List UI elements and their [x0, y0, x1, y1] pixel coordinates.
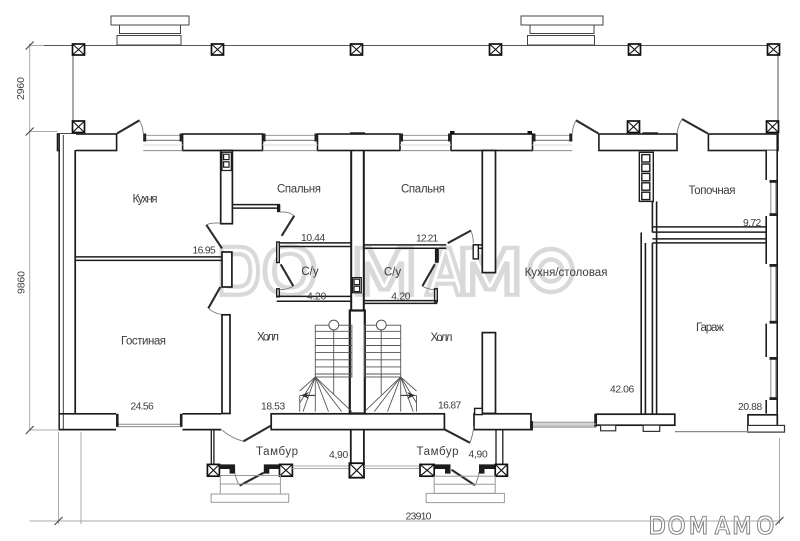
svg-text:4.20: 4.20 — [307, 292, 326, 303]
svg-text:18.53: 18.53 — [261, 401, 285, 412]
svg-text:23910: 23910 — [406, 511, 432, 523]
svg-text:Тамбур: Тамбур — [417, 446, 459, 458]
svg-text:Холл: Холл — [431, 332, 453, 344]
svg-text:С/у: С/у — [384, 267, 402, 279]
svg-text:4.20: 4.20 — [391, 292, 410, 303]
svg-text:16.95: 16.95 — [193, 245, 216, 256]
svg-text:Спальня: Спальня — [401, 184, 445, 196]
svg-text:16.87: 16.87 — [438, 400, 461, 411]
svg-text:Гостиная: Гостиная — [121, 336, 166, 348]
svg-text:9860: 9860 — [16, 271, 28, 294]
svg-text:12.21: 12.21 — [416, 233, 438, 244]
svg-text:Топочная: Топочная — [689, 185, 736, 197]
svg-text:24.56: 24.56 — [131, 401, 154, 412]
svg-text:9.72: 9.72 — [743, 218, 761, 229]
svg-text:42.06: 42.06 — [610, 384, 634, 395]
svg-text:20.88: 20.88 — [738, 402, 762, 413]
svg-text:Спальня: Спальня — [277, 184, 321, 196]
svg-text:Кухня/столовая: Кухня/столовая — [525, 267, 608, 279]
svg-text:Кухня: Кухня — [133, 194, 158, 206]
svg-text:Тамбур: Тамбур — [256, 446, 298, 458]
svg-text:2960: 2960 — [15, 77, 27, 100]
svg-text:4,90: 4,90 — [469, 450, 488, 461]
svg-text:4,90: 4,90 — [329, 450, 348, 461]
svg-text:Холл: Холл — [257, 332, 279, 344]
svg-text:10.44: 10.44 — [301, 233, 325, 244]
svg-text:С/у: С/у — [301, 266, 319, 278]
svg-text:Гараж: Гараж — [696, 322, 724, 334]
